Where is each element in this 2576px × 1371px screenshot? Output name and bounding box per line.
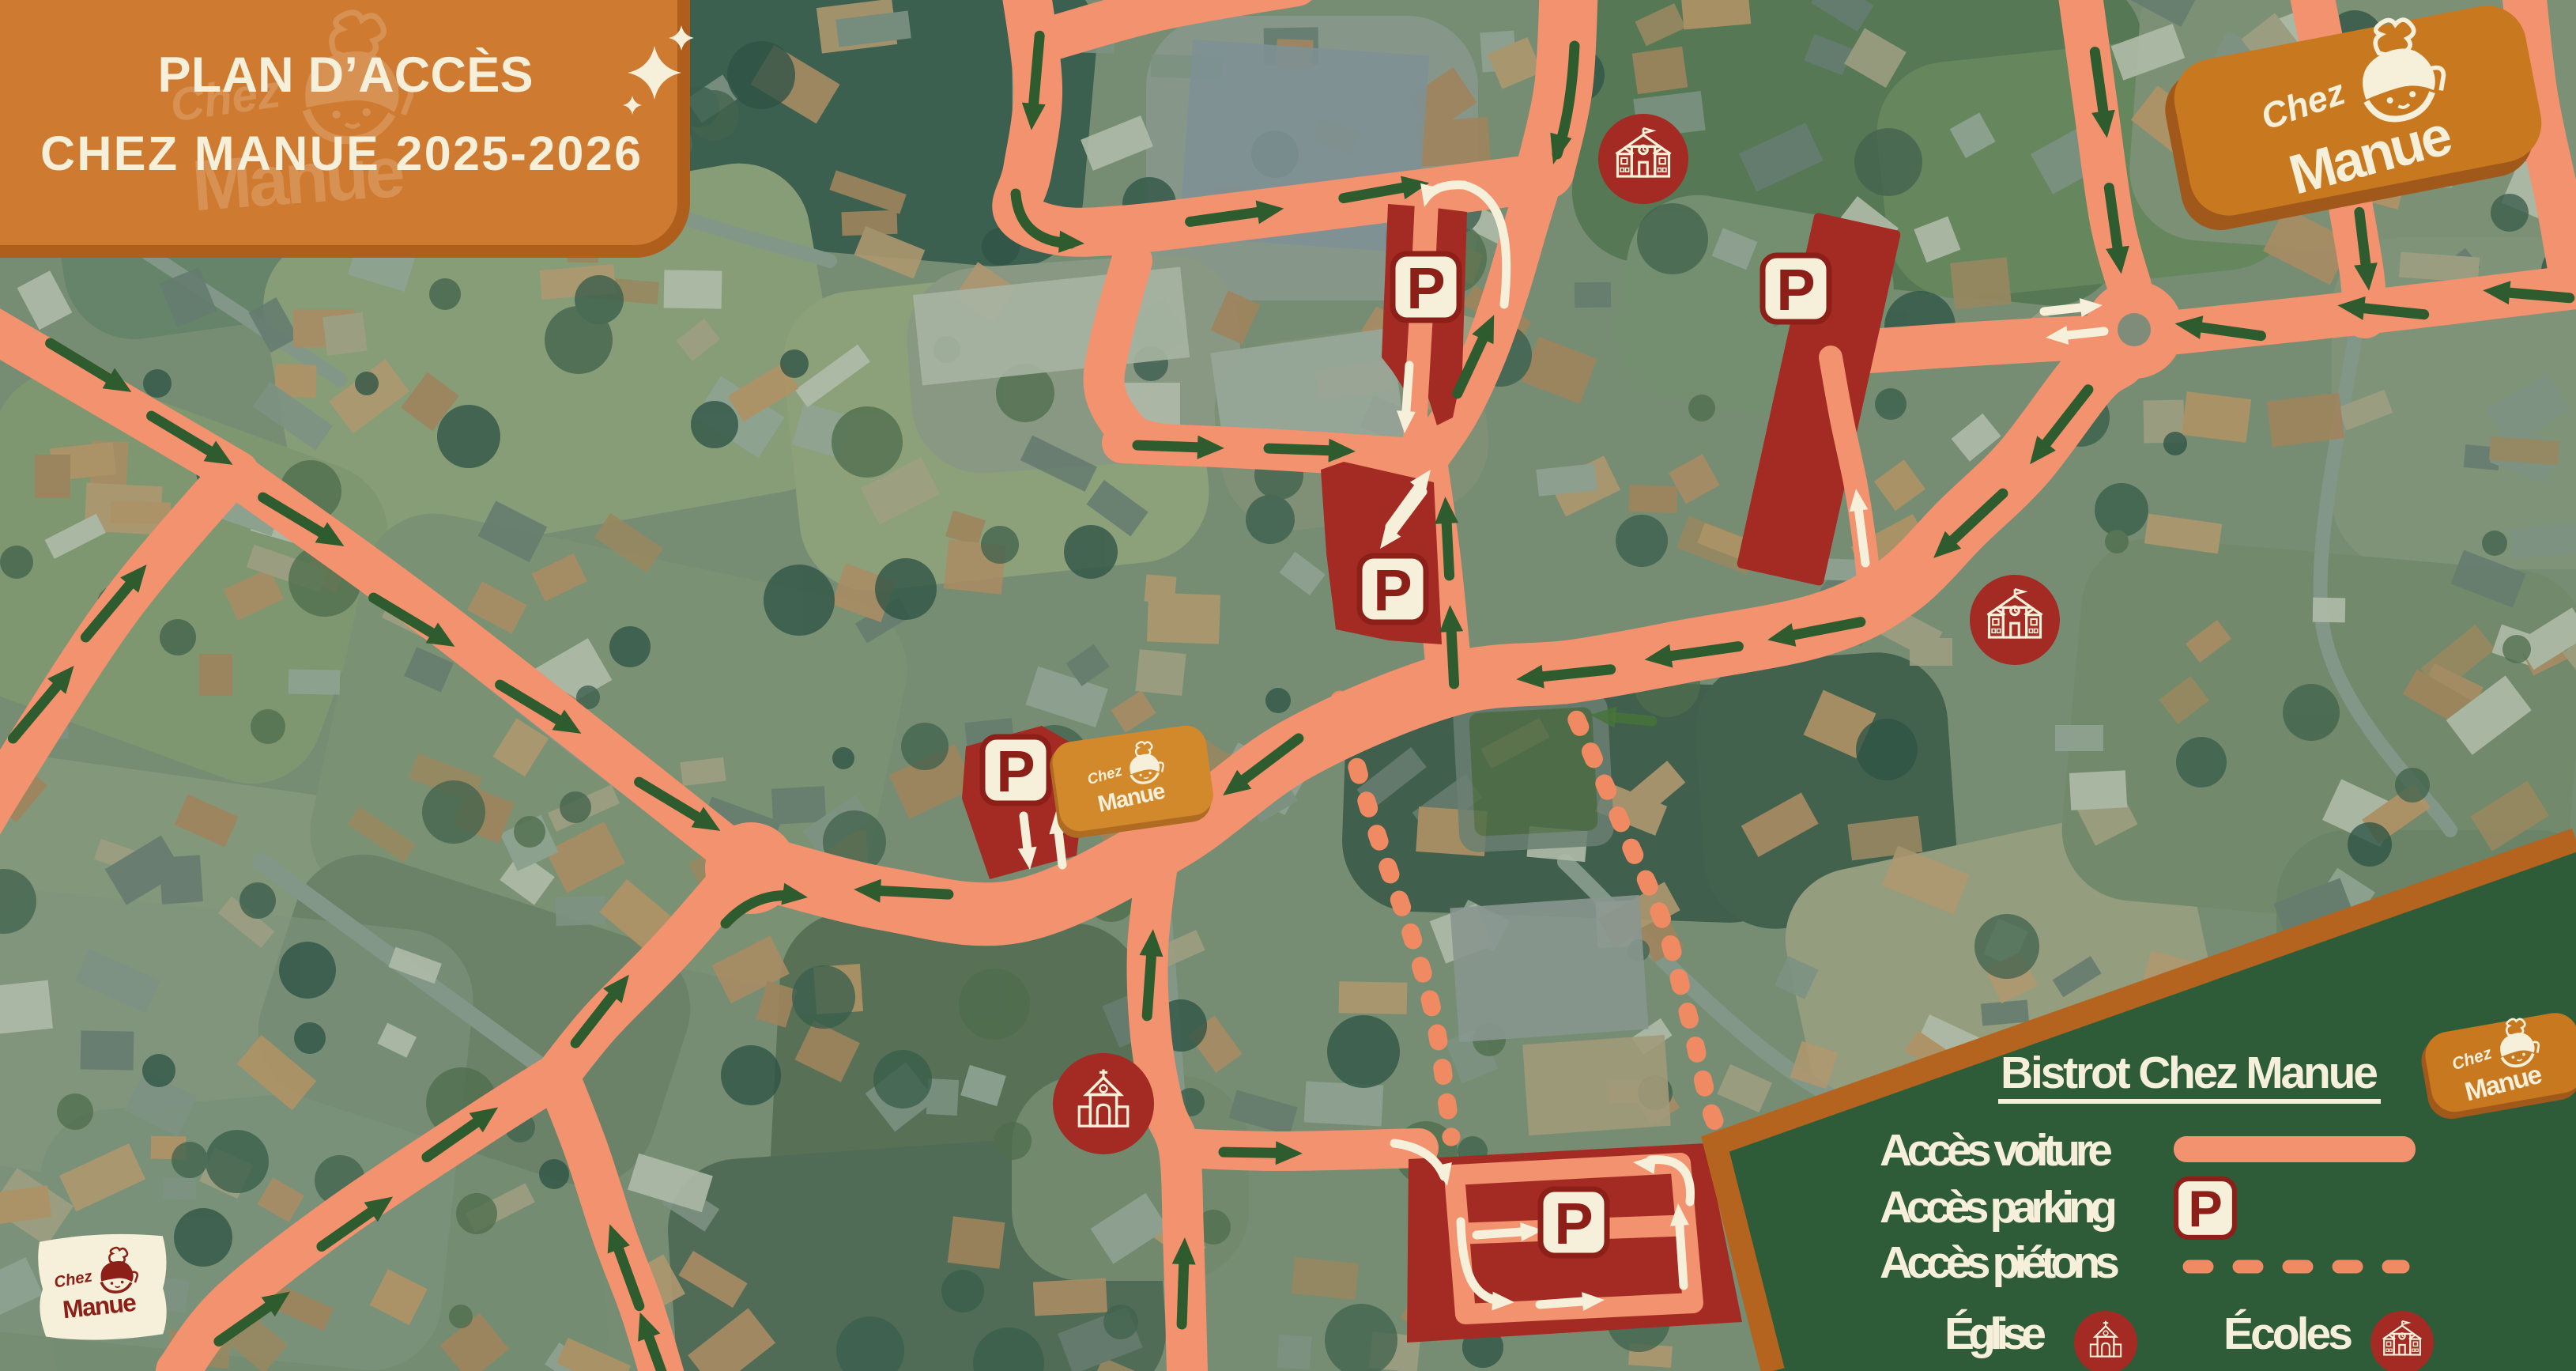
- svg-text:Accès parking: Accès parking: [1880, 1182, 2118, 1233]
- svg-text:Écoles: Écoles: [2223, 1309, 2353, 1359]
- svg-text:PLAN D’ACCÈS: PLAN D’ACCÈS: [158, 47, 534, 103]
- svg-text:P: P: [1406, 255, 1445, 321]
- svg-text:P: P: [1554, 1191, 1593, 1256]
- svg-text:Bistrot Chez Manue: Bistrot Chez Manue: [2001, 1048, 2378, 1098]
- svg-text:Accès piétons: Accès piétons: [1880, 1237, 2120, 1288]
- svg-text:P: P: [996, 738, 1035, 804]
- svg-text:CHEZ MANUE 2025-2026: CHEZ MANUE 2025-2026: [40, 127, 641, 180]
- svg-text:P: P: [2188, 1180, 2222, 1238]
- svg-text:P: P: [1776, 257, 1815, 323]
- svg-text:Église: Église: [1944, 1309, 2046, 1359]
- svg-text:P: P: [1373, 557, 1412, 623]
- svg-text:Accès voiture: Accès voiture: [1880, 1125, 2113, 1176]
